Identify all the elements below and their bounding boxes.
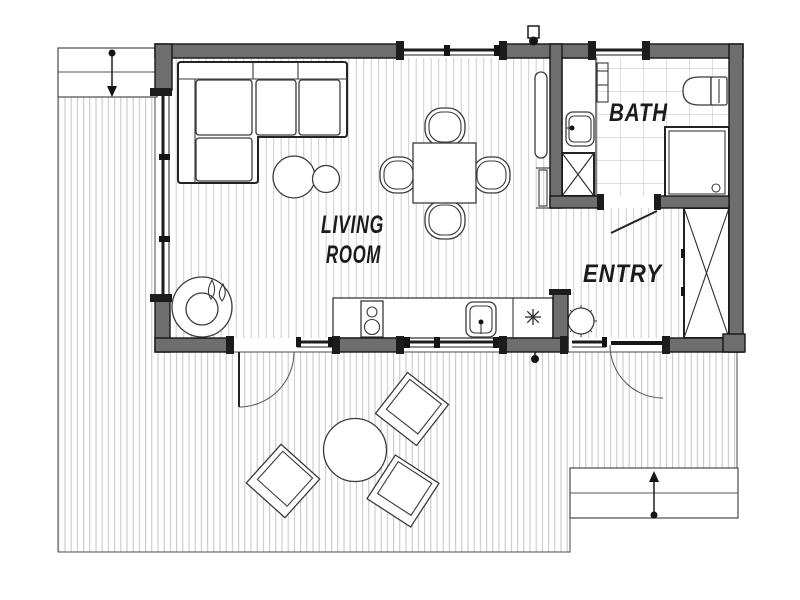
living-room-label-line1: LIVING (321, 211, 384, 239)
bathroom-sink (566, 112, 594, 146)
dining-chair (425, 201, 465, 239)
sliding-door-panel (535, 72, 547, 158)
floor-plan: LIVING ROOM BATH ENTRY (0, 0, 800, 600)
entry-closet (681, 208, 729, 338)
cooktop (361, 301, 383, 337)
dining-chair (425, 108, 465, 146)
window-top-2 (595, 50, 643, 55)
wall-bath-entry-east (656, 196, 729, 208)
bath-label: BATH (609, 99, 668, 127)
vent-marker-top (528, 26, 539, 46)
dining-chair (473, 157, 510, 193)
wood-stove (172, 277, 232, 337)
wall-top-right (643, 44, 743, 58)
window-bottom-3 (572, 337, 607, 347)
wall-right (729, 44, 743, 352)
kitchen-counter (333, 298, 553, 338)
shower (665, 127, 729, 198)
closet-hinge (681, 287, 685, 296)
washer-cabinet (562, 153, 594, 196)
wall-bath-living (550, 44, 562, 208)
window-top-1 (403, 45, 500, 56)
entry-label: ENTRY (583, 260, 663, 288)
wall-bath-entry-west (550, 196, 603, 208)
wall-bottom-2 (333, 338, 403, 352)
window-left (159, 96, 170, 295)
deck-stairs-bottom-right (570, 468, 738, 519)
dining-chair (380, 157, 417, 193)
wall-left-upper (155, 44, 172, 90)
closet-hinge (681, 249, 685, 258)
window-bottom-1 (296, 337, 333, 347)
coffee-table-large (273, 156, 315, 198)
living-room-label-line2: ROOM (326, 241, 381, 269)
kitchen-sink (466, 302, 496, 337)
wall-top-mid (500, 44, 595, 58)
wall-bottom-1 (155, 338, 233, 352)
wall-top-left (155, 44, 403, 58)
dining-table (413, 143, 476, 203)
toilet (683, 77, 727, 105)
deck-stairs-top-left (58, 48, 157, 97)
coffee-table-small (313, 166, 340, 193)
deck-table (324, 419, 387, 482)
asterisk-light-icon (525, 309, 541, 325)
wall-bottom-3 (500, 338, 568, 352)
wall-kitchen-stub (553, 291, 568, 338)
